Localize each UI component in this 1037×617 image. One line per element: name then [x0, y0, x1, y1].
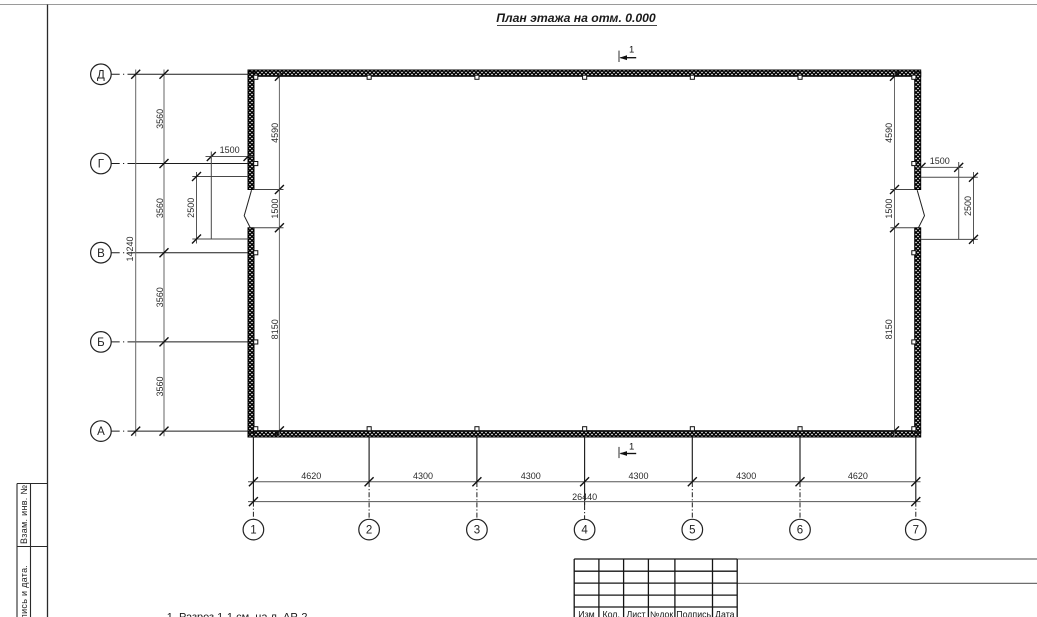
svg-text:4590: 4590: [270, 123, 280, 143]
svg-text:2500: 2500: [186, 198, 196, 218]
svg-text:А: А: [97, 426, 105, 438]
svg-text:4300: 4300: [736, 471, 756, 481]
svg-text:2: 2: [366, 525, 372, 537]
svg-text:4620: 4620: [848, 471, 868, 481]
svg-text:4300: 4300: [628, 471, 648, 481]
svg-text:3560: 3560: [155, 109, 165, 129]
svg-text:4300: 4300: [413, 471, 433, 481]
svg-text:Дата: Дата: [715, 610, 735, 617]
svg-text:Г: Г: [98, 159, 105, 171]
svg-text:3: 3: [474, 525, 480, 537]
svg-text:1: 1: [250, 525, 256, 537]
svg-text:3560: 3560: [155, 287, 165, 307]
svg-text:Д: Д: [97, 69, 105, 81]
svg-text:Кол.: Кол.: [602, 610, 619, 617]
svg-text:1: 1: [629, 45, 634, 56]
svg-text:Изм: Изм: [578, 610, 594, 617]
svg-text:1500: 1500: [270, 199, 280, 219]
svg-text:План этажа на отм. 0.000: План этажа на отм. 0.000: [496, 11, 656, 25]
svg-text:1. Разрез 1-1 см. на л. АР-2: 1. Разрез 1-1 см. на л. АР-2: [167, 611, 308, 617]
svg-text:Лист: Лист: [626, 610, 645, 617]
svg-text:1500: 1500: [220, 145, 240, 155]
svg-text:№док: №док: [650, 610, 673, 617]
svg-text:В: В: [97, 248, 105, 260]
svg-text:4: 4: [581, 525, 588, 537]
svg-text:4300: 4300: [521, 471, 541, 481]
svg-text:4620: 4620: [301, 471, 321, 481]
svg-text:14240: 14240: [125, 236, 135, 261]
svg-text:4590: 4590: [884, 123, 894, 143]
svg-text:5: 5: [689, 525, 695, 537]
svg-text:Подпись и дата.: Подпись и дата.: [19, 565, 29, 617]
svg-text:Взам. инв. №: Взам. инв. №: [19, 485, 29, 544]
svg-text:1500: 1500: [884, 199, 894, 219]
svg-text:7: 7: [913, 525, 919, 537]
svg-text:1: 1: [629, 441, 634, 452]
svg-text:Б: Б: [97, 337, 105, 349]
svg-text:26440: 26440: [572, 492, 597, 502]
svg-text:3560: 3560: [155, 198, 165, 218]
svg-text:1500: 1500: [930, 156, 950, 166]
svg-text:3560: 3560: [155, 376, 165, 396]
svg-text:8150: 8150: [884, 319, 894, 339]
svg-text:8150: 8150: [270, 319, 280, 339]
svg-text:Подпись: Подпись: [676, 610, 711, 617]
svg-text:2500: 2500: [963, 196, 973, 216]
svg-text:6: 6: [797, 525, 803, 537]
